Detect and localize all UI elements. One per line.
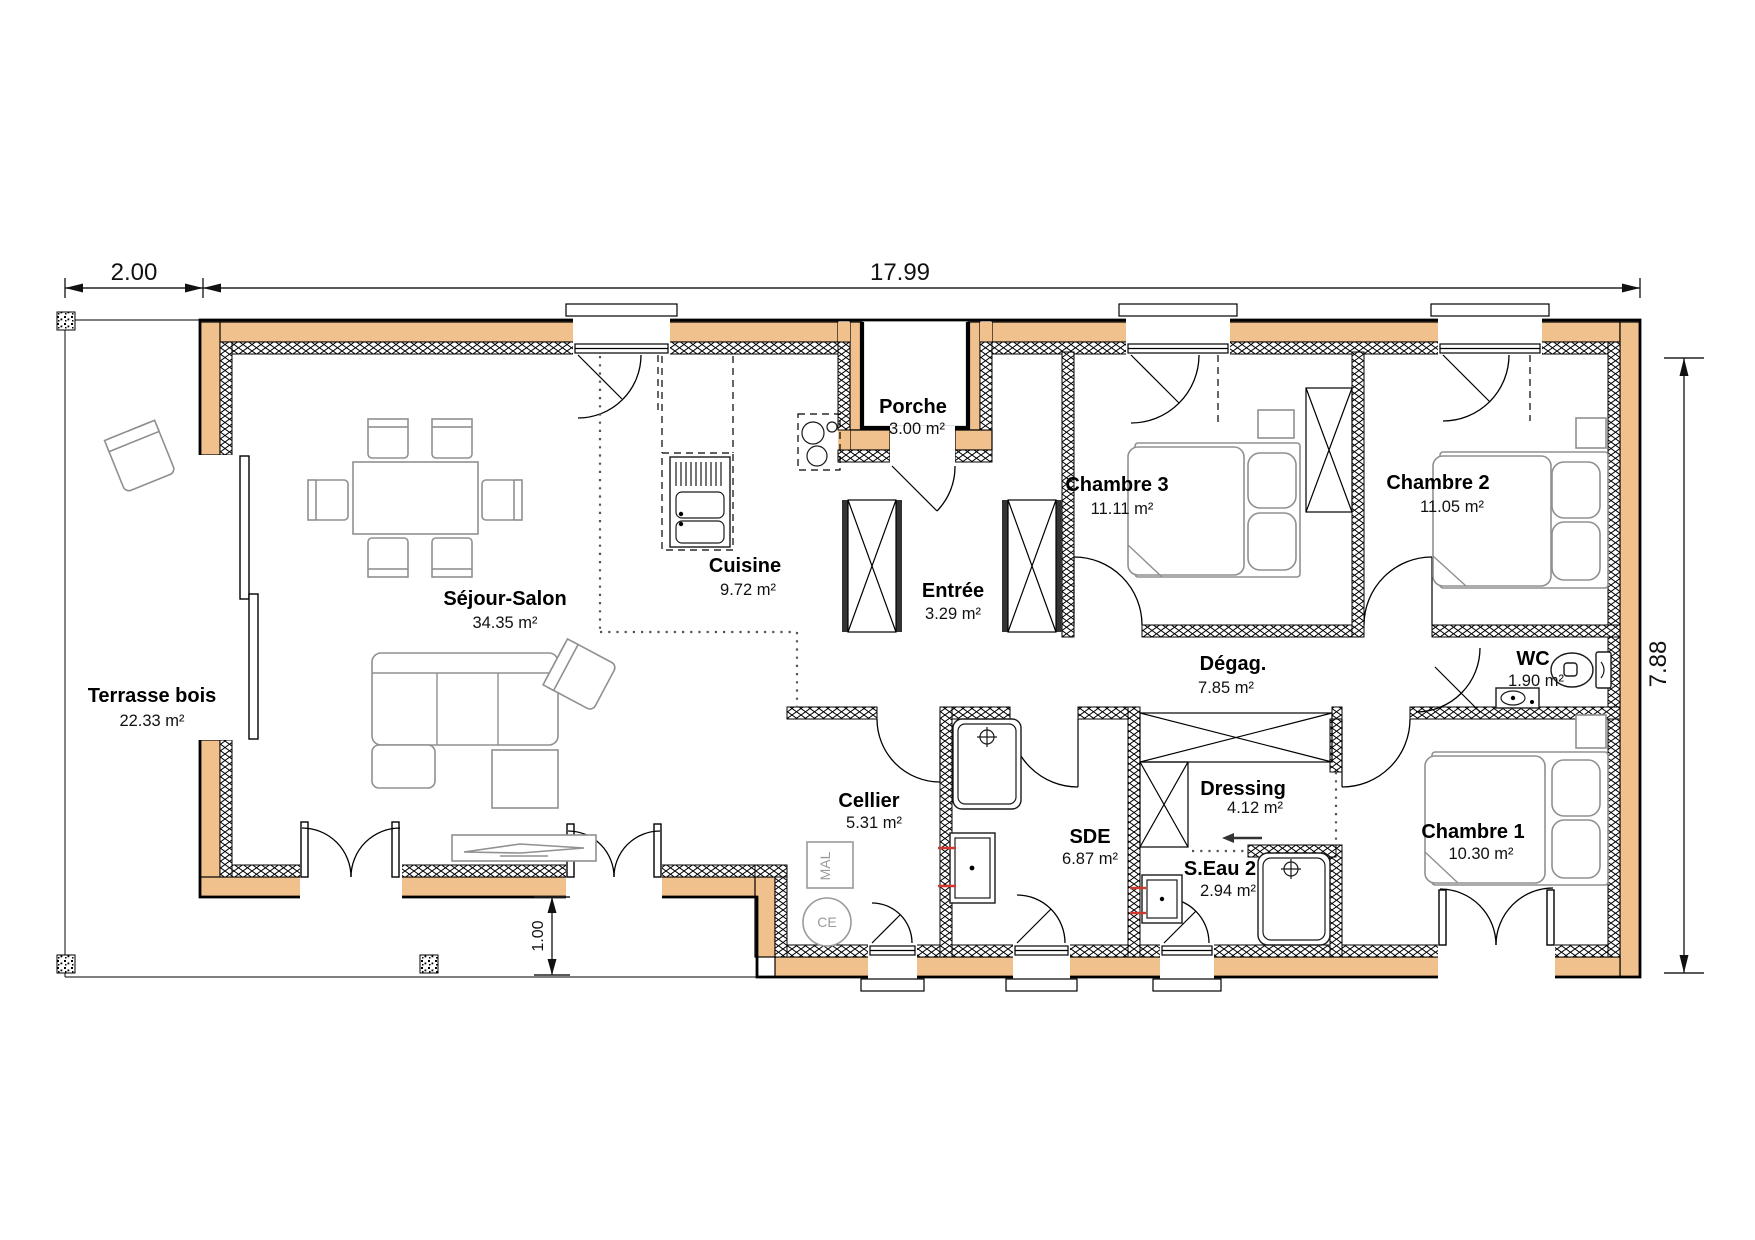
dimension-right: 7.88 xyxy=(1645,358,1704,973)
floor-plan-canvas: MAL CE xyxy=(0,0,1755,1240)
wall-openings xyxy=(196,314,1555,981)
nightstand xyxy=(1576,715,1606,748)
water-heater-label: CE xyxy=(817,914,836,930)
room-label-chambre3: Chambre 3 xyxy=(1065,474,1168,496)
room-area-sejour: 34.35 m² xyxy=(472,614,538,632)
room-label-terrasse: Terrasse bois xyxy=(88,685,217,707)
dining-chair xyxy=(482,480,522,520)
cooktop xyxy=(798,414,840,470)
wardrobe-chambre3 xyxy=(1306,388,1352,512)
dining-table xyxy=(308,419,522,577)
room-label-entree: Entrée xyxy=(922,580,984,602)
dining-chair xyxy=(368,538,408,577)
floor-plan-page: MAL CE xyxy=(0,0,1755,1240)
room-area-porche: 3.00 m² xyxy=(889,420,945,438)
dim-overhang: 1.00 xyxy=(530,920,547,951)
room-labels: Terrasse bois 22.33 m² Séjour-Salon 34.3… xyxy=(88,396,1565,900)
room-area-sde: 6.87 m² xyxy=(1062,850,1118,868)
french-door-chambre1 xyxy=(1439,888,1554,945)
terrace-post xyxy=(420,955,438,973)
wc-basin xyxy=(1496,688,1539,708)
room-label-degag: Dégag. xyxy=(1200,653,1267,675)
dim-terrace-width: 2.00 xyxy=(111,259,158,286)
dining-chair xyxy=(308,480,348,520)
room-area-chambre1: 10.30 m² xyxy=(1448,845,1514,863)
wardrobe-dressing-top xyxy=(1140,713,1332,762)
tv-bench xyxy=(452,835,596,861)
room-area-cellier: 5.31 m² xyxy=(846,814,902,832)
room-label-sejour: Séjour-Salon xyxy=(443,588,566,610)
closet-entree-left xyxy=(842,500,902,632)
bay-door-terrace xyxy=(240,456,258,739)
coffee-table xyxy=(492,750,558,808)
armchair-terrace xyxy=(105,420,176,492)
dimension-top: 2.00 17.99 xyxy=(65,259,1640,298)
shower-sde xyxy=(953,719,1021,809)
dressing-entry-arrow xyxy=(1222,833,1262,843)
room-area-chambre2: 11.05 m² xyxy=(1420,498,1484,516)
room-label-sde: SDE xyxy=(1069,826,1110,848)
room-area-degag: 7.85 m² xyxy=(1198,679,1254,697)
room-label-cuisine: Cuisine xyxy=(709,555,781,577)
room-label-dressing: Dressing xyxy=(1200,778,1286,800)
door-wc xyxy=(1416,648,1480,712)
wardrobe-dressing-side xyxy=(1140,762,1188,847)
door-chambre2 xyxy=(1364,557,1432,625)
room-area-cuisine: 9.72 m² xyxy=(720,581,776,599)
room-area-dressing: 4.12 m² xyxy=(1227,799,1283,817)
room-area-entree: 3.29 m² xyxy=(925,605,981,623)
room-area-terrasse: 22.33 m² xyxy=(119,712,185,730)
dim-total-height: 7.88 xyxy=(1645,641,1672,688)
nightstand xyxy=(1258,410,1294,438)
closet-entree-right xyxy=(1002,500,1062,632)
room-area-chambre3: 11.11 m² xyxy=(1091,500,1154,518)
terrace-post xyxy=(57,955,75,973)
room-label-wc: WC xyxy=(1516,648,1549,670)
kitchen-sink xyxy=(670,457,730,547)
shower-seau2 xyxy=(1258,853,1330,945)
door-cellier xyxy=(877,719,940,782)
kitchen-counters xyxy=(662,356,840,550)
room-area-seau2: 2.94 m² xyxy=(1200,882,1256,900)
room-label-chambre1: Chambre 1 xyxy=(1421,821,1524,843)
dim-total-width: 17.99 xyxy=(870,259,930,286)
nightstand xyxy=(1576,418,1606,448)
terrace-post xyxy=(57,312,75,330)
dimension-terrace-overhang: 1.00 xyxy=(530,897,570,975)
room-label-cellier: Cellier xyxy=(838,790,899,812)
door-chambre1 xyxy=(1342,719,1410,787)
room-label-chambre2: Chambre 2 xyxy=(1386,472,1489,494)
room-label-porche: Porche xyxy=(879,396,947,418)
room-area-wc: 1.90 m² xyxy=(1508,672,1564,690)
dining-chair xyxy=(432,419,472,458)
washer-label: MAL xyxy=(817,851,833,880)
washing-machine: MAL xyxy=(807,842,853,888)
dining-chair xyxy=(432,538,472,577)
water-heater: CE xyxy=(803,898,851,946)
dining-chair xyxy=(368,419,408,458)
room-label-seau2: S.Eau 2 xyxy=(1184,858,1256,880)
